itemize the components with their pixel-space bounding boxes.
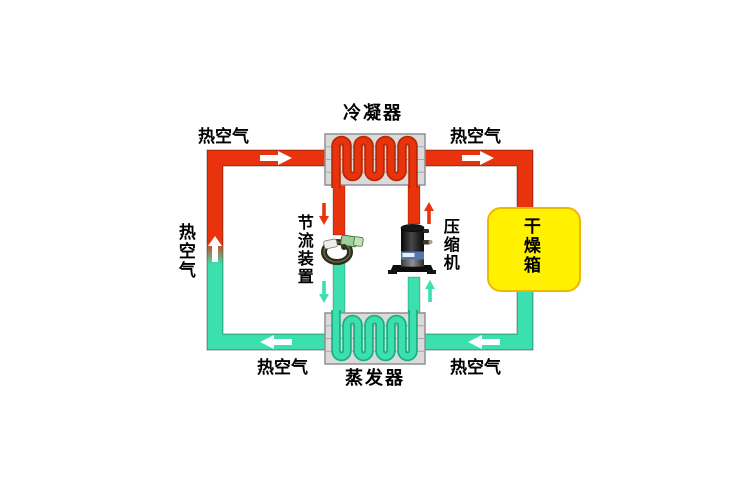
hot-air-label-top-left: 热空气: [198, 128, 249, 146]
condenser-label: 冷凝器: [329, 104, 417, 123]
pipe-condenser-to-throttle: [333, 182, 345, 235]
condenser-unit: [325, 134, 425, 188]
arrow-down-teal-icon: [319, 281, 329, 303]
evaporator-unit: [325, 310, 425, 364]
hot-air-label-top-right: 热空气: [450, 128, 501, 146]
pipe-compressor-to-condenser: [408, 182, 420, 224]
hot-air-label-bottom-left: 热空气: [257, 359, 308, 377]
arrow-up-teal-icon: [425, 280, 435, 302]
compressor-label: 压缩机: [440, 218, 457, 272]
evaporator-label: 蒸发器: [331, 369, 419, 388]
pipe-throttle-to-evaporator: [333, 262, 345, 315]
throttle-device-label: 节流装置: [294, 214, 311, 286]
schematic-graphics: [0, 0, 750, 500]
arrow-down-red-icon: [319, 203, 329, 225]
compressor-illustration: [388, 224, 436, 274]
diagram-canvas: 冷凝器 蒸发器 热空气 热空气 热空气 热空气 热空气 节流装置 压缩机 干燥箱: [0, 0, 750, 500]
pipe-evaporator-to-compressor: [408, 277, 420, 315]
hot-air-label-bottom-right: 热空气: [450, 359, 501, 377]
throttle-device-illustration: [323, 235, 363, 262]
drying-box-label: 干燥箱: [521, 217, 539, 276]
hot-air-label-left-side: 热空气: [176, 223, 194, 280]
arrow-up-red-icon: [424, 202, 434, 224]
